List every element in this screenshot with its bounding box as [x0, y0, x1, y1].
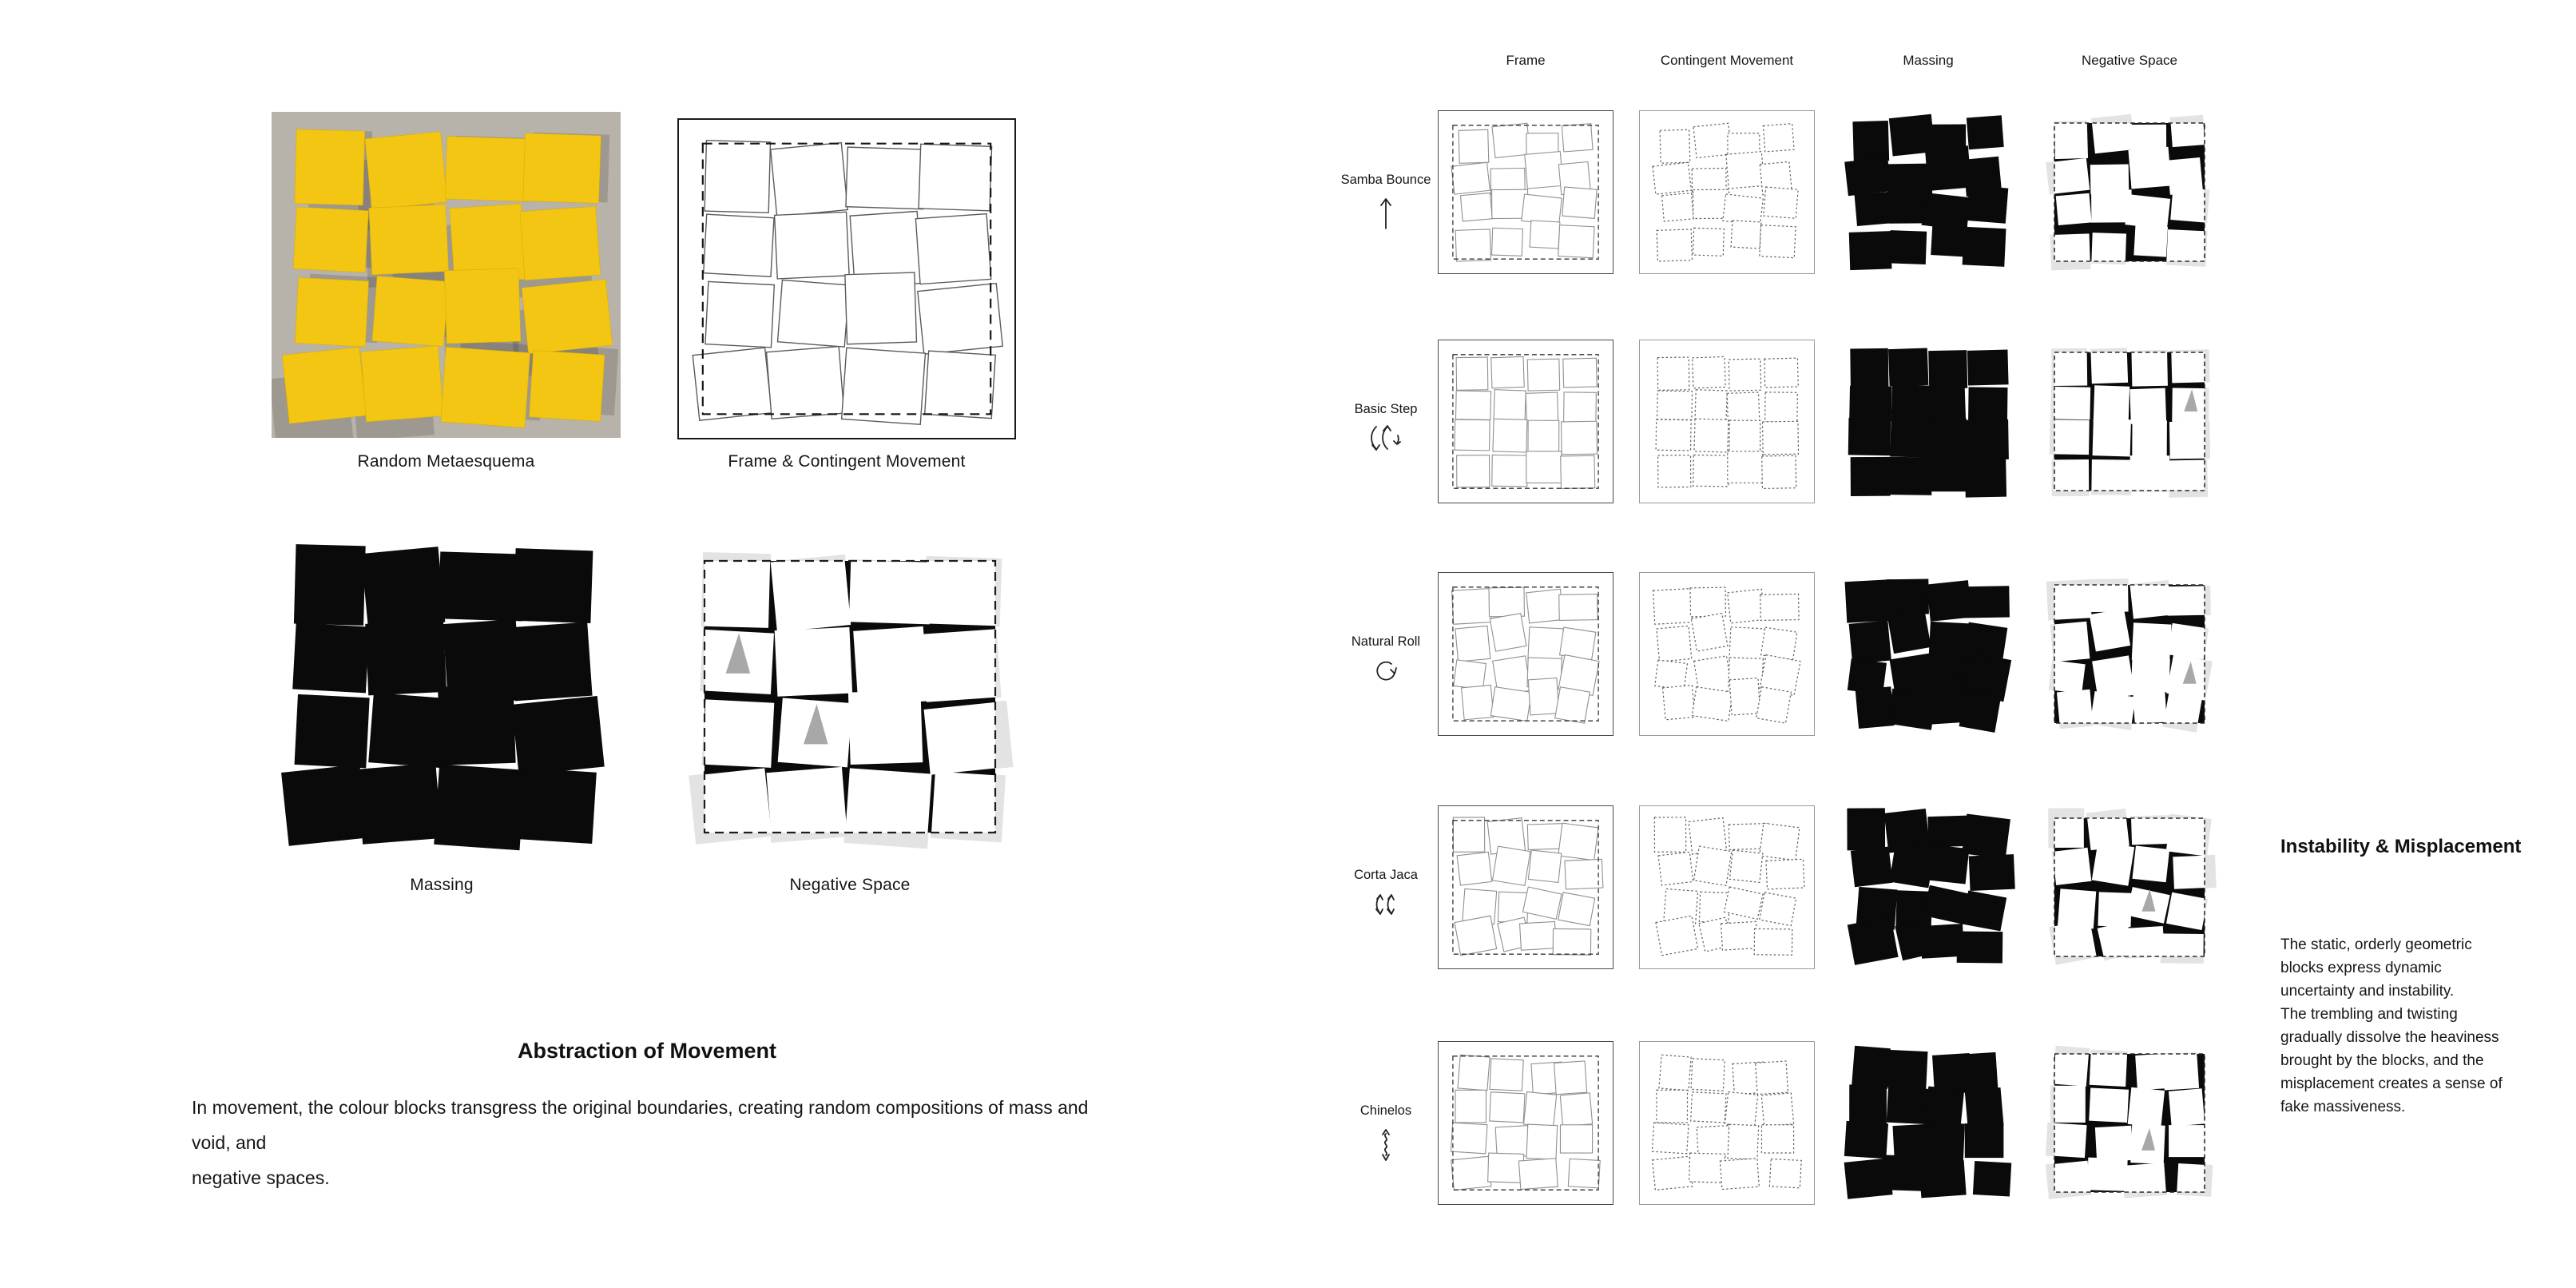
column-header-contingent-movement: Contingent Movement	[1639, 53, 1815, 69]
column-header-negative-space: Negative Space	[2042, 53, 2217, 69]
negative-cell-graphic	[2042, 572, 2217, 736]
frame-contingent-graphic	[679, 120, 1014, 438]
matrix-cell-chinelos-frame	[1438, 1041, 1613, 1205]
matrix-cell-samba-bounce-negative	[2042, 110, 2217, 274]
massing-cell-graphic	[1840, 805, 2016, 969]
frame-cell-graphic	[1439, 806, 1613, 968]
matrix-cell-samba-bounce-frame	[1438, 110, 1613, 274]
presentation-board: Random Metaesquema Frame & Contingent Mo…	[0, 0, 2576, 1288]
matrix-cell-corta-jaca-contingent	[1639, 805, 1815, 969]
matrix-cell-basic-step-negative	[2042, 340, 2217, 503]
negative-space-graphic	[684, 540, 1016, 853]
negative-cell-graphic	[2042, 110, 2217, 274]
matrix-cell-natural-roll-contingent	[1639, 572, 1815, 736]
matrix-cell-basic-step-massing	[1840, 340, 2016, 503]
matrix-cell-chinelos-negative	[2042, 1041, 2217, 1205]
matrix-cell-natural-roll-negative	[2042, 572, 2217, 736]
intro-paragraph: In movement, the colour blocks transgres…	[192, 1090, 1118, 1195]
matrix-cell-corta-jaca-massing	[1840, 805, 2016, 969]
matrix-cell-samba-bounce-massing	[1840, 110, 2016, 274]
panel-negative-space	[684, 540, 1016, 853]
contingent-cell-graphic	[1640, 573, 1814, 735]
caption-random-metaesquema: Random Metaesquema	[272, 452, 621, 471]
contingent-cell-graphic	[1640, 111, 1814, 273]
matrix-cell-natural-roll-frame	[1438, 572, 1613, 736]
massing-graphic	[278, 534, 605, 853]
matrix-cell-basic-step-contingent	[1639, 340, 1815, 503]
contingent-cell-graphic	[1640, 1042, 1814, 1204]
column-header-frame: Frame	[1438, 53, 1613, 69]
panel-frame-contingent-movement	[677, 118, 1016, 439]
caption-frame-contingent: Frame & Contingent Movement	[677, 452, 1016, 471]
matrix-cell-samba-bounce-contingent	[1639, 110, 1815, 274]
random-metaesquema-graphic	[272, 112, 621, 438]
matrix-cell-corta-jaca-negative	[2042, 805, 2217, 969]
matrix-cell-basic-step-frame	[1438, 340, 1613, 503]
aside-title: Instability & Misplacement	[2280, 836, 2544, 858]
caption-negative-space: Negative Space	[684, 876, 1016, 895]
panel-massing	[278, 534, 605, 853]
page-title: Abstraction of Movement	[192, 1039, 1102, 1063]
frame-cell-graphic	[1439, 1042, 1613, 1204]
caption-massing: Massing	[278, 876, 605, 895]
matrix-cell-chinelos-contingent	[1639, 1041, 1815, 1205]
column-header-massing: Massing	[1840, 53, 2016, 69]
massing-cell-graphic	[1840, 572, 2016, 736]
panel-random-metaesquema	[272, 112, 621, 438]
negative-cell-graphic	[2042, 340, 2217, 503]
negative-cell-graphic	[2042, 805, 2217, 969]
contingent-cell-graphic	[1640, 806, 1814, 968]
massing-cell-graphic	[1840, 110, 2016, 274]
massing-cell-graphic	[1840, 1041, 2016, 1205]
massing-cell-graphic	[1840, 340, 2016, 503]
matrix-cell-corta-jaca-frame	[1438, 805, 1613, 969]
frame-cell-graphic	[1439, 340, 1613, 503]
frame-cell-graphic	[1439, 111, 1613, 273]
matrix-cell-chinelos-massing	[1840, 1041, 2016, 1205]
frame-cell-graphic	[1439, 573, 1613, 735]
matrix-cell-natural-roll-massing	[1840, 572, 2016, 736]
aside-paragraph: The static, orderly geometric blocks exp…	[2280, 933, 2536, 1119]
contingent-cell-graphic	[1640, 340, 1814, 503]
negative-cell-graphic	[2042, 1041, 2217, 1205]
